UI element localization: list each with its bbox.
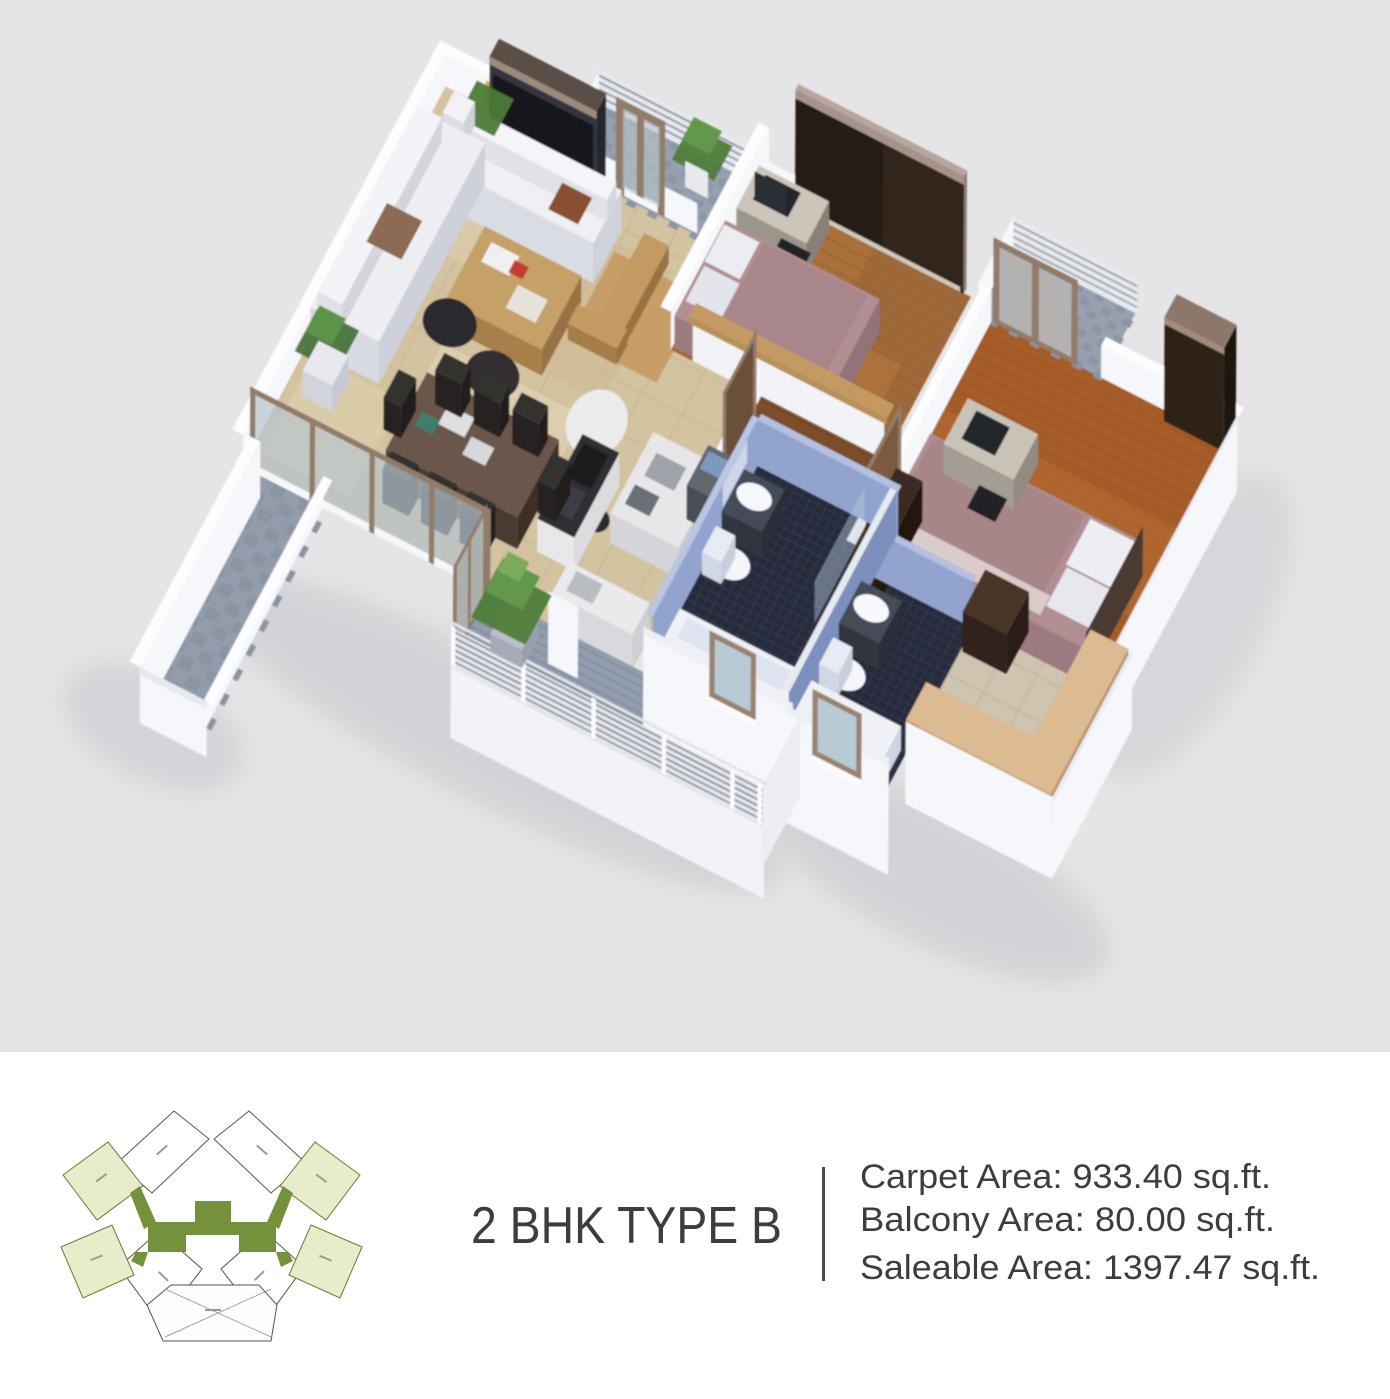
svg-text:2 BHK TYPE B: 2 BHK TYPE B <box>471 1197 782 1255</box>
svg-text:Saleable Area: 1397.47 sq.ft.: Saleable Area: 1397.47 sq.ft. <box>860 1249 1320 1287</box>
svg-text:Carpet Area: 933.40 sq.ft.: Carpet Area: 933.40 sq.ft. <box>860 1158 1271 1196</box>
svg-text:Balcony Area: 80.00 sq.ft.: Balcony Area: 80.00 sq.ft. <box>860 1201 1275 1239</box>
